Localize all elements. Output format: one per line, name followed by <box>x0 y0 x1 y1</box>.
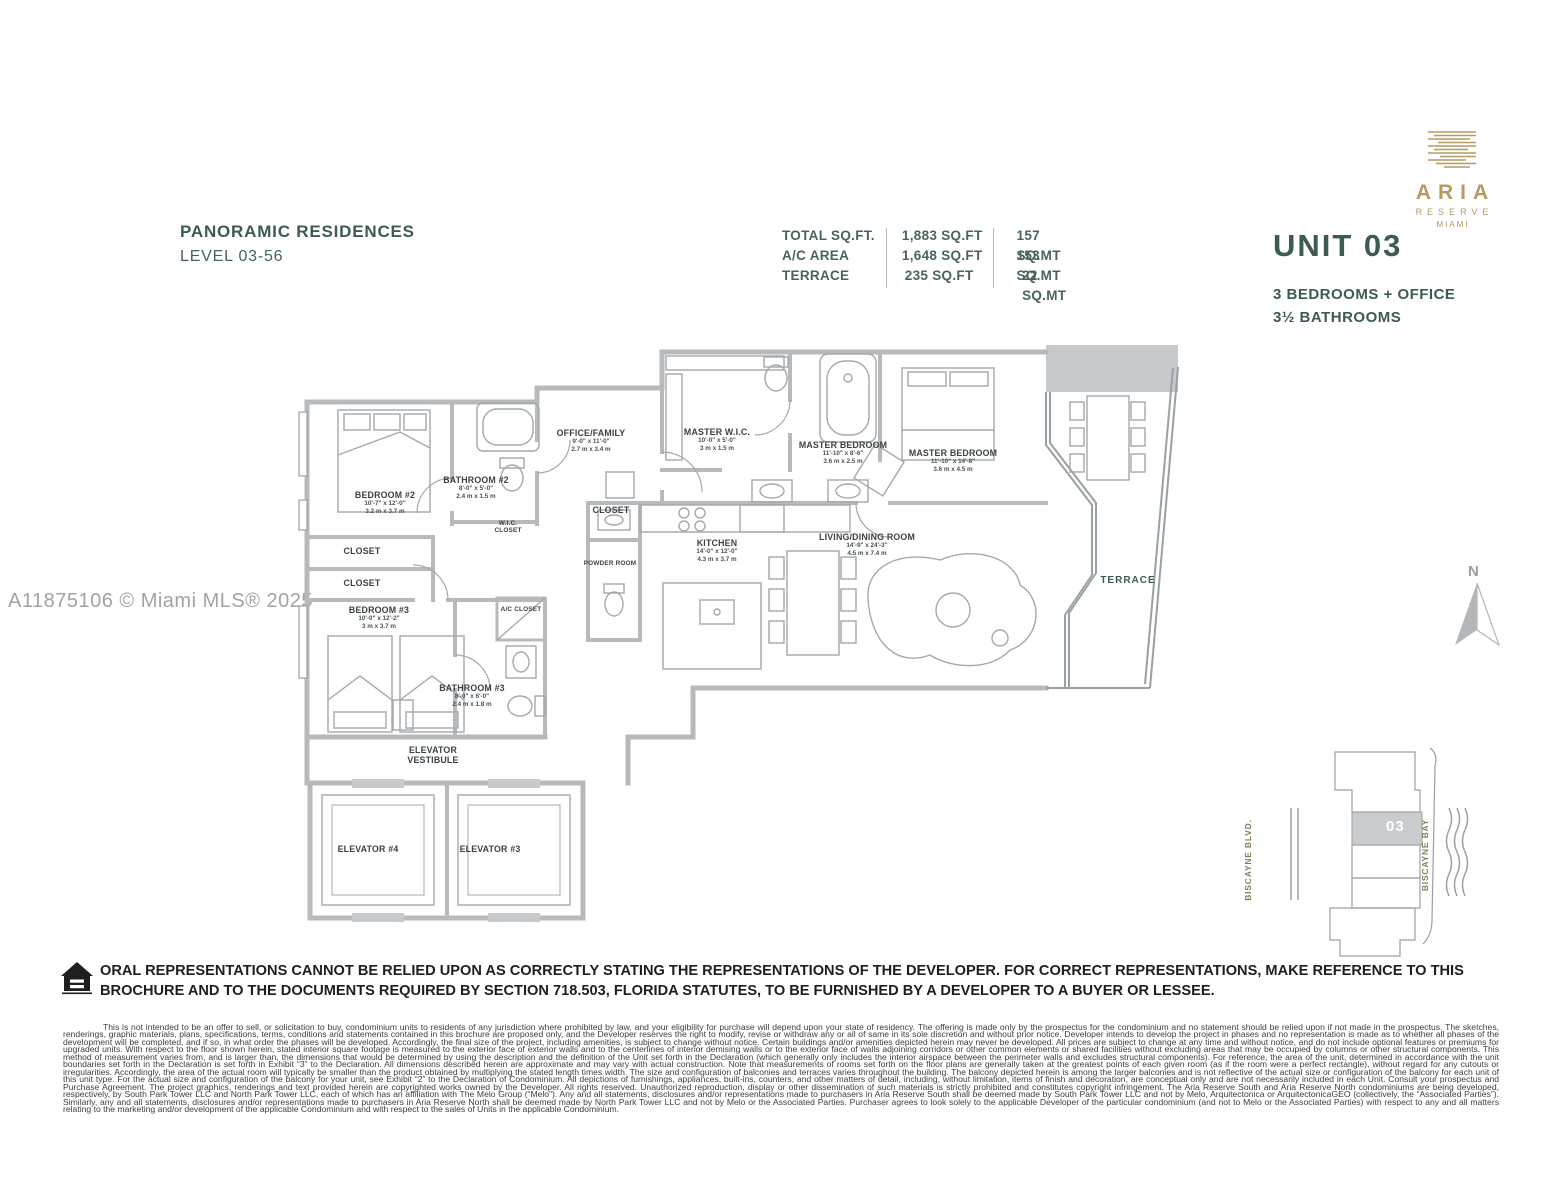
toilet-icon <box>604 584 624 616</box>
room-label-bedroom-3: BEDROOM #3 10'-0" x 12'-2" 3 m x 3.7 m <box>319 605 439 630</box>
equal-housing-icon <box>60 961 94 995</box>
floor-plan <box>0 0 1553 1200</box>
room-label-wic-closet: W.I.C. CLOSET <box>488 520 528 534</box>
room-label-master-wic: MASTER W.I.C. 10'-0" x 5'-0" 3 m x 1.5 m <box>662 427 772 452</box>
room-label-ac-closet: A/C CLOSET <box>499 606 543 613</box>
sofa-icon <box>868 554 1036 666</box>
bed-icon <box>328 636 392 732</box>
ac-closet-line <box>497 598 545 640</box>
room-label-master-bedroom: MASTER BEDROOM 11'-10" x 14'-8" 3.6 m x … <box>893 448 1013 473</box>
bay-waves-icon <box>1447 808 1468 896</box>
bathtub-icon <box>477 403 539 451</box>
legal-fine-print: This is not intended to be an offer to s… <box>63 1024 1499 1113</box>
keyplan <box>1291 748 1468 956</box>
keyplan-bay-label: BISCAYNE BAY <box>1420 795 1430 915</box>
room-label-bathroom-2: BATHROOM #2 8'-0" x 5'-0" 2.4 m x 1.5 m <box>426 475 526 500</box>
keyplan-unit-number: 03 <box>1386 818 1405 835</box>
wall-block <box>1046 345 1178 392</box>
room-label-powder-room: POWDER ROOM <box>580 560 640 567</box>
road-lines <box>1291 808 1298 900</box>
kitchen-counter <box>640 505 850 532</box>
room-label-living-dining: LIVING/DINING ROOM 14'-9" x 24'-3" 4.5 m… <box>792 532 942 557</box>
kitchen-island <box>663 583 761 669</box>
room-label-elevator-4: ELEVATOR #4 <box>318 844 418 854</box>
dining-table-icon <box>769 551 856 655</box>
bed-icon <box>902 368 994 460</box>
room-label-elevator-vestibule: ELEVATOR VESTIBULE <box>383 745 483 765</box>
sink-icon <box>606 472 634 498</box>
room-label-office-family: OFFICE/FAMILY 9'-0" x 11'-0" 2.7 m x 3.4… <box>536 428 646 453</box>
outdoor-table-icon <box>1070 396 1145 480</box>
compass-north-label: N <box>1468 563 1479 580</box>
vanity-sinks <box>752 480 868 502</box>
sink-icon <box>506 646 536 678</box>
room-label-master-bath: MASTER BEDROOM 11'-10" x 8'-6" 3.6 m x 2… <box>783 440 903 465</box>
room-label-elevator-3: ELEVATOR #3 <box>440 844 540 854</box>
room-label-closet-1: CLOSET <box>322 546 402 556</box>
nightstand-icon <box>393 700 413 730</box>
compass-icon <box>1455 583 1499 645</box>
room-label-closet-2: CLOSET <box>322 578 402 588</box>
floorplan-brochure-page: PANORAMIC RESIDENCES LEVEL 03-56 TOTAL S… <box>0 0 1553 1200</box>
room-label-terrace: TERRACE <box>1078 575 1178 586</box>
room-label-bathroom-3: BATHROOM #3 8'-0" x 6'-0" 2.4 m x 1.8 m <box>417 683 527 708</box>
bathtub-icon <box>820 354 876 442</box>
room-label-kitchen: KITCHEN 14'-0" x 12'-0" 4.3 m x 3.7 m <box>662 538 772 563</box>
oral-representations-notice: ORAL REPRESENTATIONS CANNOT BE RELIED UP… <box>100 962 1498 1001</box>
room-label-closet-3: CLOSET <box>576 505 646 515</box>
keyplan-street-label: BISCAYNE BLVD. <box>1243 800 1253 920</box>
terrace-glass <box>1046 367 1178 688</box>
